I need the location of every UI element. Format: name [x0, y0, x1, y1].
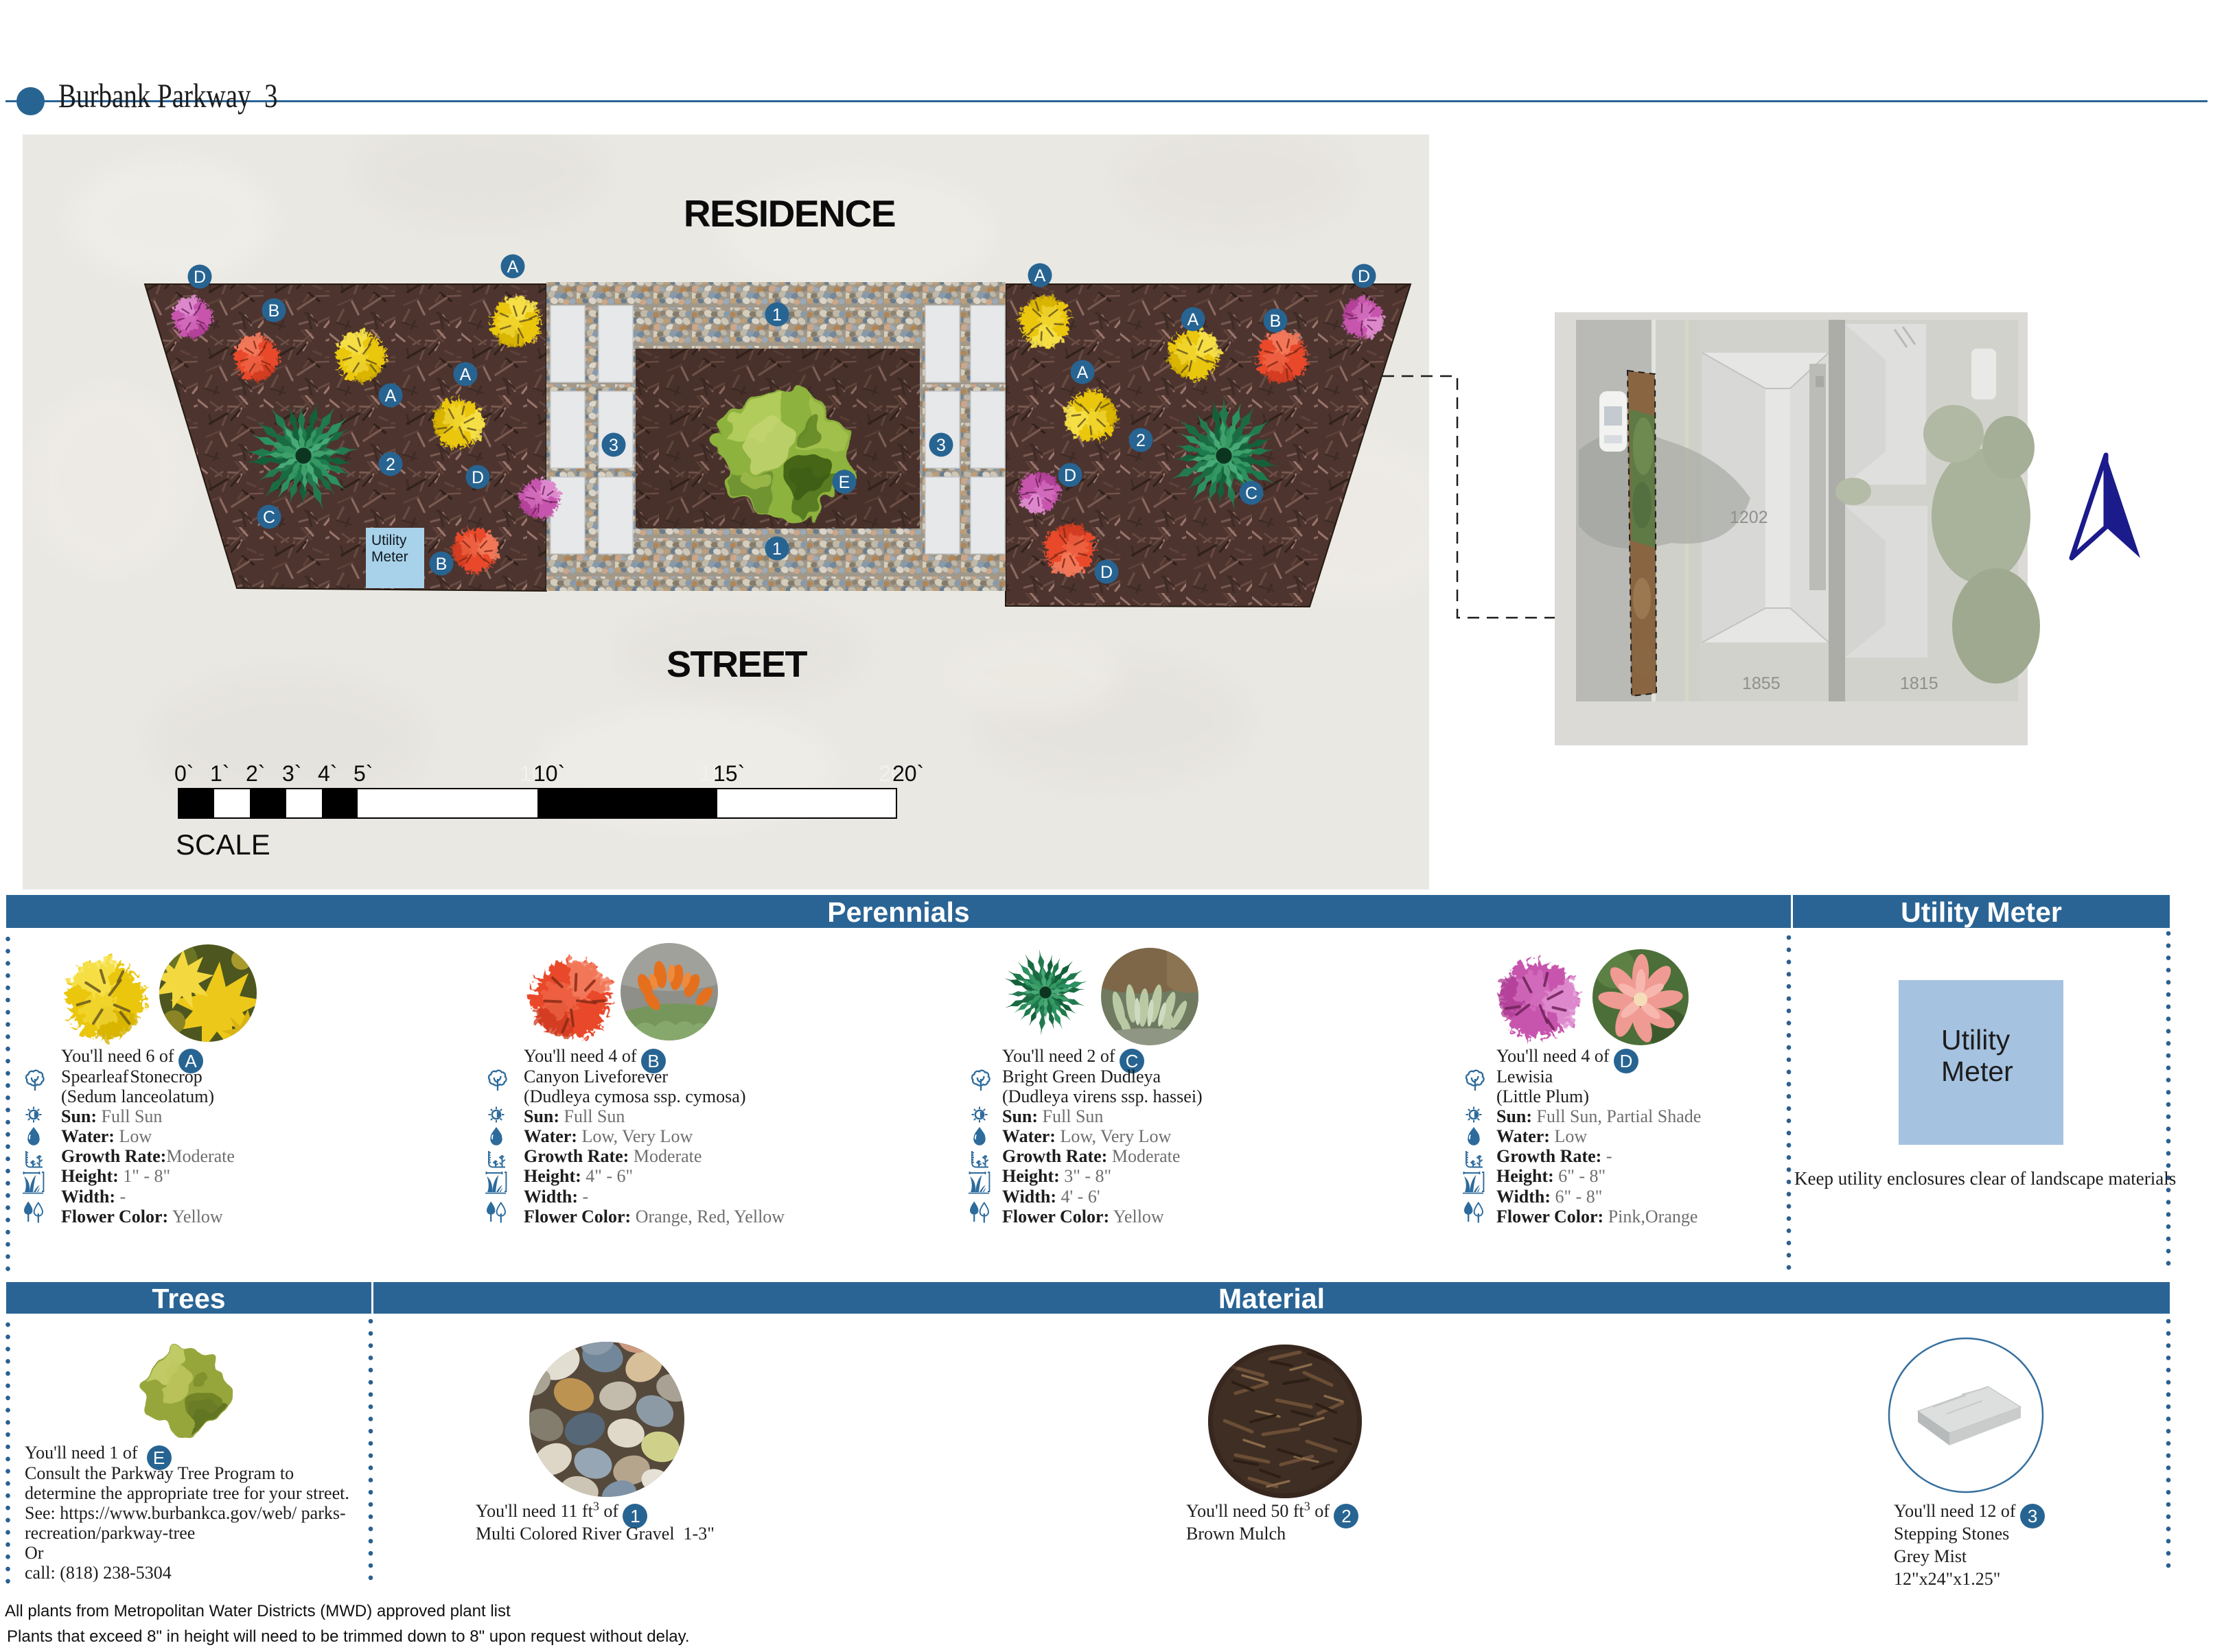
svg-text:1855: 1855 [1742, 674, 1781, 693]
svg-text:3: 3 [609, 436, 618, 455]
svg-text:B: B [268, 301, 280, 321]
svg-text:10`: 10` [533, 761, 565, 786]
svg-text:A: A [460, 365, 472, 384]
svg-text:3: 3 [936, 436, 946, 455]
svg-text:STREET: STREET [667, 644, 808, 685]
svg-text:Meter: Meter [371, 549, 408, 565]
svg-text:3`: 3` [282, 761, 301, 786]
svg-text:1202: 1202 [1730, 508, 1768, 527]
svg-text:20`: 20` [892, 761, 924, 786]
svg-text:2`: 2` [246, 761, 265, 786]
svg-text:C: C [1245, 484, 1258, 503]
svg-text:C: C [263, 508, 275, 527]
svg-text:A: A [1187, 310, 1199, 329]
svg-text:1`: 1` [210, 761, 229, 786]
svg-text:B: B [1270, 312, 1282, 331]
svg-text:4`: 4` [318, 761, 337, 786]
svg-text:E: E [839, 473, 850, 492]
svg-text:D: D [194, 268, 206, 287]
svg-text:SCALE: SCALE [176, 828, 270, 861]
svg-text:A: A [385, 386, 397, 406]
svg-text:A: A [1034, 266, 1046, 286]
svg-text:1: 1 [772, 305, 782, 325]
svg-text:5`: 5` [354, 761, 373, 786]
svg-text:A: A [507, 257, 519, 277]
svg-text:D: D [1358, 267, 1370, 286]
svg-text:B: B [436, 555, 448, 574]
svg-text:D: D [1100, 563, 1113, 582]
svg-text:2: 2 [1136, 431, 1146, 450]
svg-text:RESIDENCE: RESIDENCE [684, 192, 895, 235]
svg-text:0`: 0` [174, 761, 194, 786]
svg-text:15`: 15` [713, 761, 745, 786]
svg-text:D: D [472, 468, 484, 487]
svg-text:1: 1 [772, 539, 782, 559]
svg-text:D: D [1064, 466, 1076, 485]
svg-text:A: A [1077, 363, 1089, 382]
svg-text:1815: 1815 [1900, 674, 1938, 693]
svg-text:2: 2 [386, 455, 395, 474]
svg-text:Utility: Utility [371, 533, 407, 548]
